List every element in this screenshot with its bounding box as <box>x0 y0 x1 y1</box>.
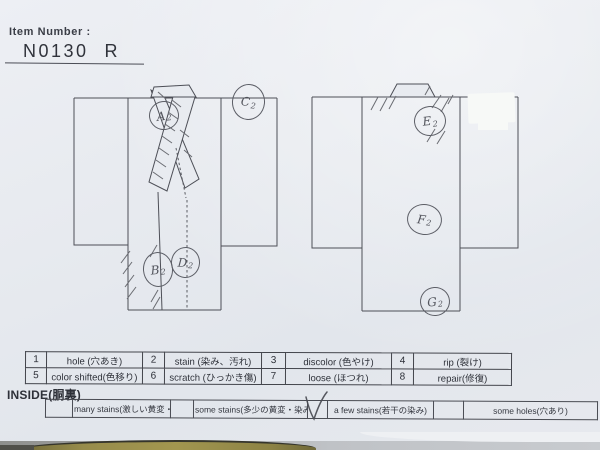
whiteout-patch <box>467 92 515 130</box>
condition-label: discolor (色やけ) <box>285 353 391 369</box>
condition-code: 1 <box>26 352 47 368</box>
inside-checkbox-some-holes <box>433 401 463 419</box>
condition-code: 4 <box>391 353 413 369</box>
condition-row-1: 1 hole (穴あき) 2 stain (染み、汚れ) 3 discolor … <box>26 352 512 370</box>
inside-checkbox-some-stains <box>170 400 193 418</box>
condition-label: color shifted(色移り) <box>46 368 142 384</box>
condition-label: hole (穴あき) <box>47 352 143 368</box>
condition-label: scratch (ひっかき傷) <box>164 368 261 384</box>
condition-code: 7 <box>261 368 285 384</box>
inside-options-row: many stains(激しい黄変・染み) some stains(多少の黄変・… <box>45 399 597 419</box>
condition-code: 6 <box>142 368 164 384</box>
condition-code: 3 <box>262 352 286 368</box>
inside-option-label: many stains(激しい黄変・染み) <box>72 399 170 417</box>
condition-label: rip (裂け) <box>413 353 511 369</box>
condition-row-2: 5 color shifted(色移り) 6 scratch (ひっかき傷) 7… <box>25 368 511 386</box>
condition-legend-table: 1 hole (穴あき) 2 stain (染み、汚れ) 3 discolor … <box>25 351 512 386</box>
kimono-front-collar <box>149 85 199 191</box>
inside-option-label: some holes(穴あり) <box>463 401 597 420</box>
condition-code: 5 <box>25 368 46 384</box>
condition-label: stain (染み、汚れ) <box>165 352 262 368</box>
condition-label: loose (ほつれ) <box>285 369 391 385</box>
condition-code: 2 <box>143 352 165 368</box>
photo-corner-shadow <box>0 445 34 450</box>
condition-code: 8 <box>391 369 413 385</box>
inside-option-label: a few stains(若干の染み) <box>327 401 433 419</box>
inspection-sheet-photo: Item Number : N0130R <box>0 0 600 450</box>
inside-checkbox-many-stains <box>45 399 72 417</box>
inside-option-label: some stains(多少の黄変・染み) <box>193 400 307 418</box>
inside-options-table: many stains(激しい黄変・染み) some stains(多少の黄変・… <box>45 399 598 420</box>
kimono-back-collar <box>390 84 435 97</box>
inside-checkbox-a-few-stains <box>307 400 327 418</box>
condition-label: repair(修復) <box>413 369 511 385</box>
